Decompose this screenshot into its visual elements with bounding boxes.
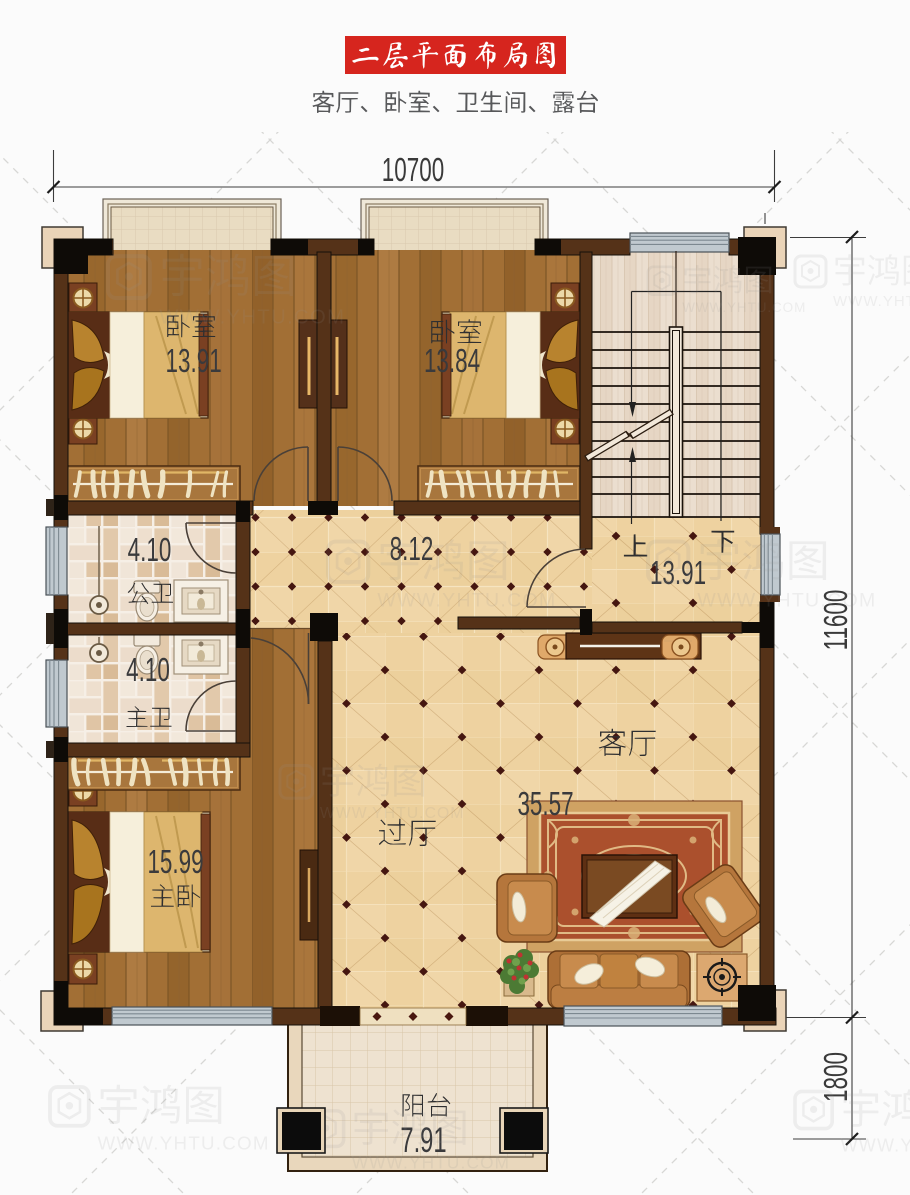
- svg-text:10700: 10700: [382, 151, 444, 188]
- svg-text:13.84: 13.84: [424, 342, 480, 379]
- svg-text:35.57: 35.57: [517, 785, 573, 822]
- svg-text:4.10: 4.10: [128, 531, 172, 568]
- svg-text:15.99: 15.99: [147, 843, 203, 880]
- svg-text:4.10: 4.10: [126, 651, 170, 688]
- svg-text:8.12: 8.12: [390, 530, 434, 567]
- svg-text:13.91: 13.91: [166, 342, 222, 379]
